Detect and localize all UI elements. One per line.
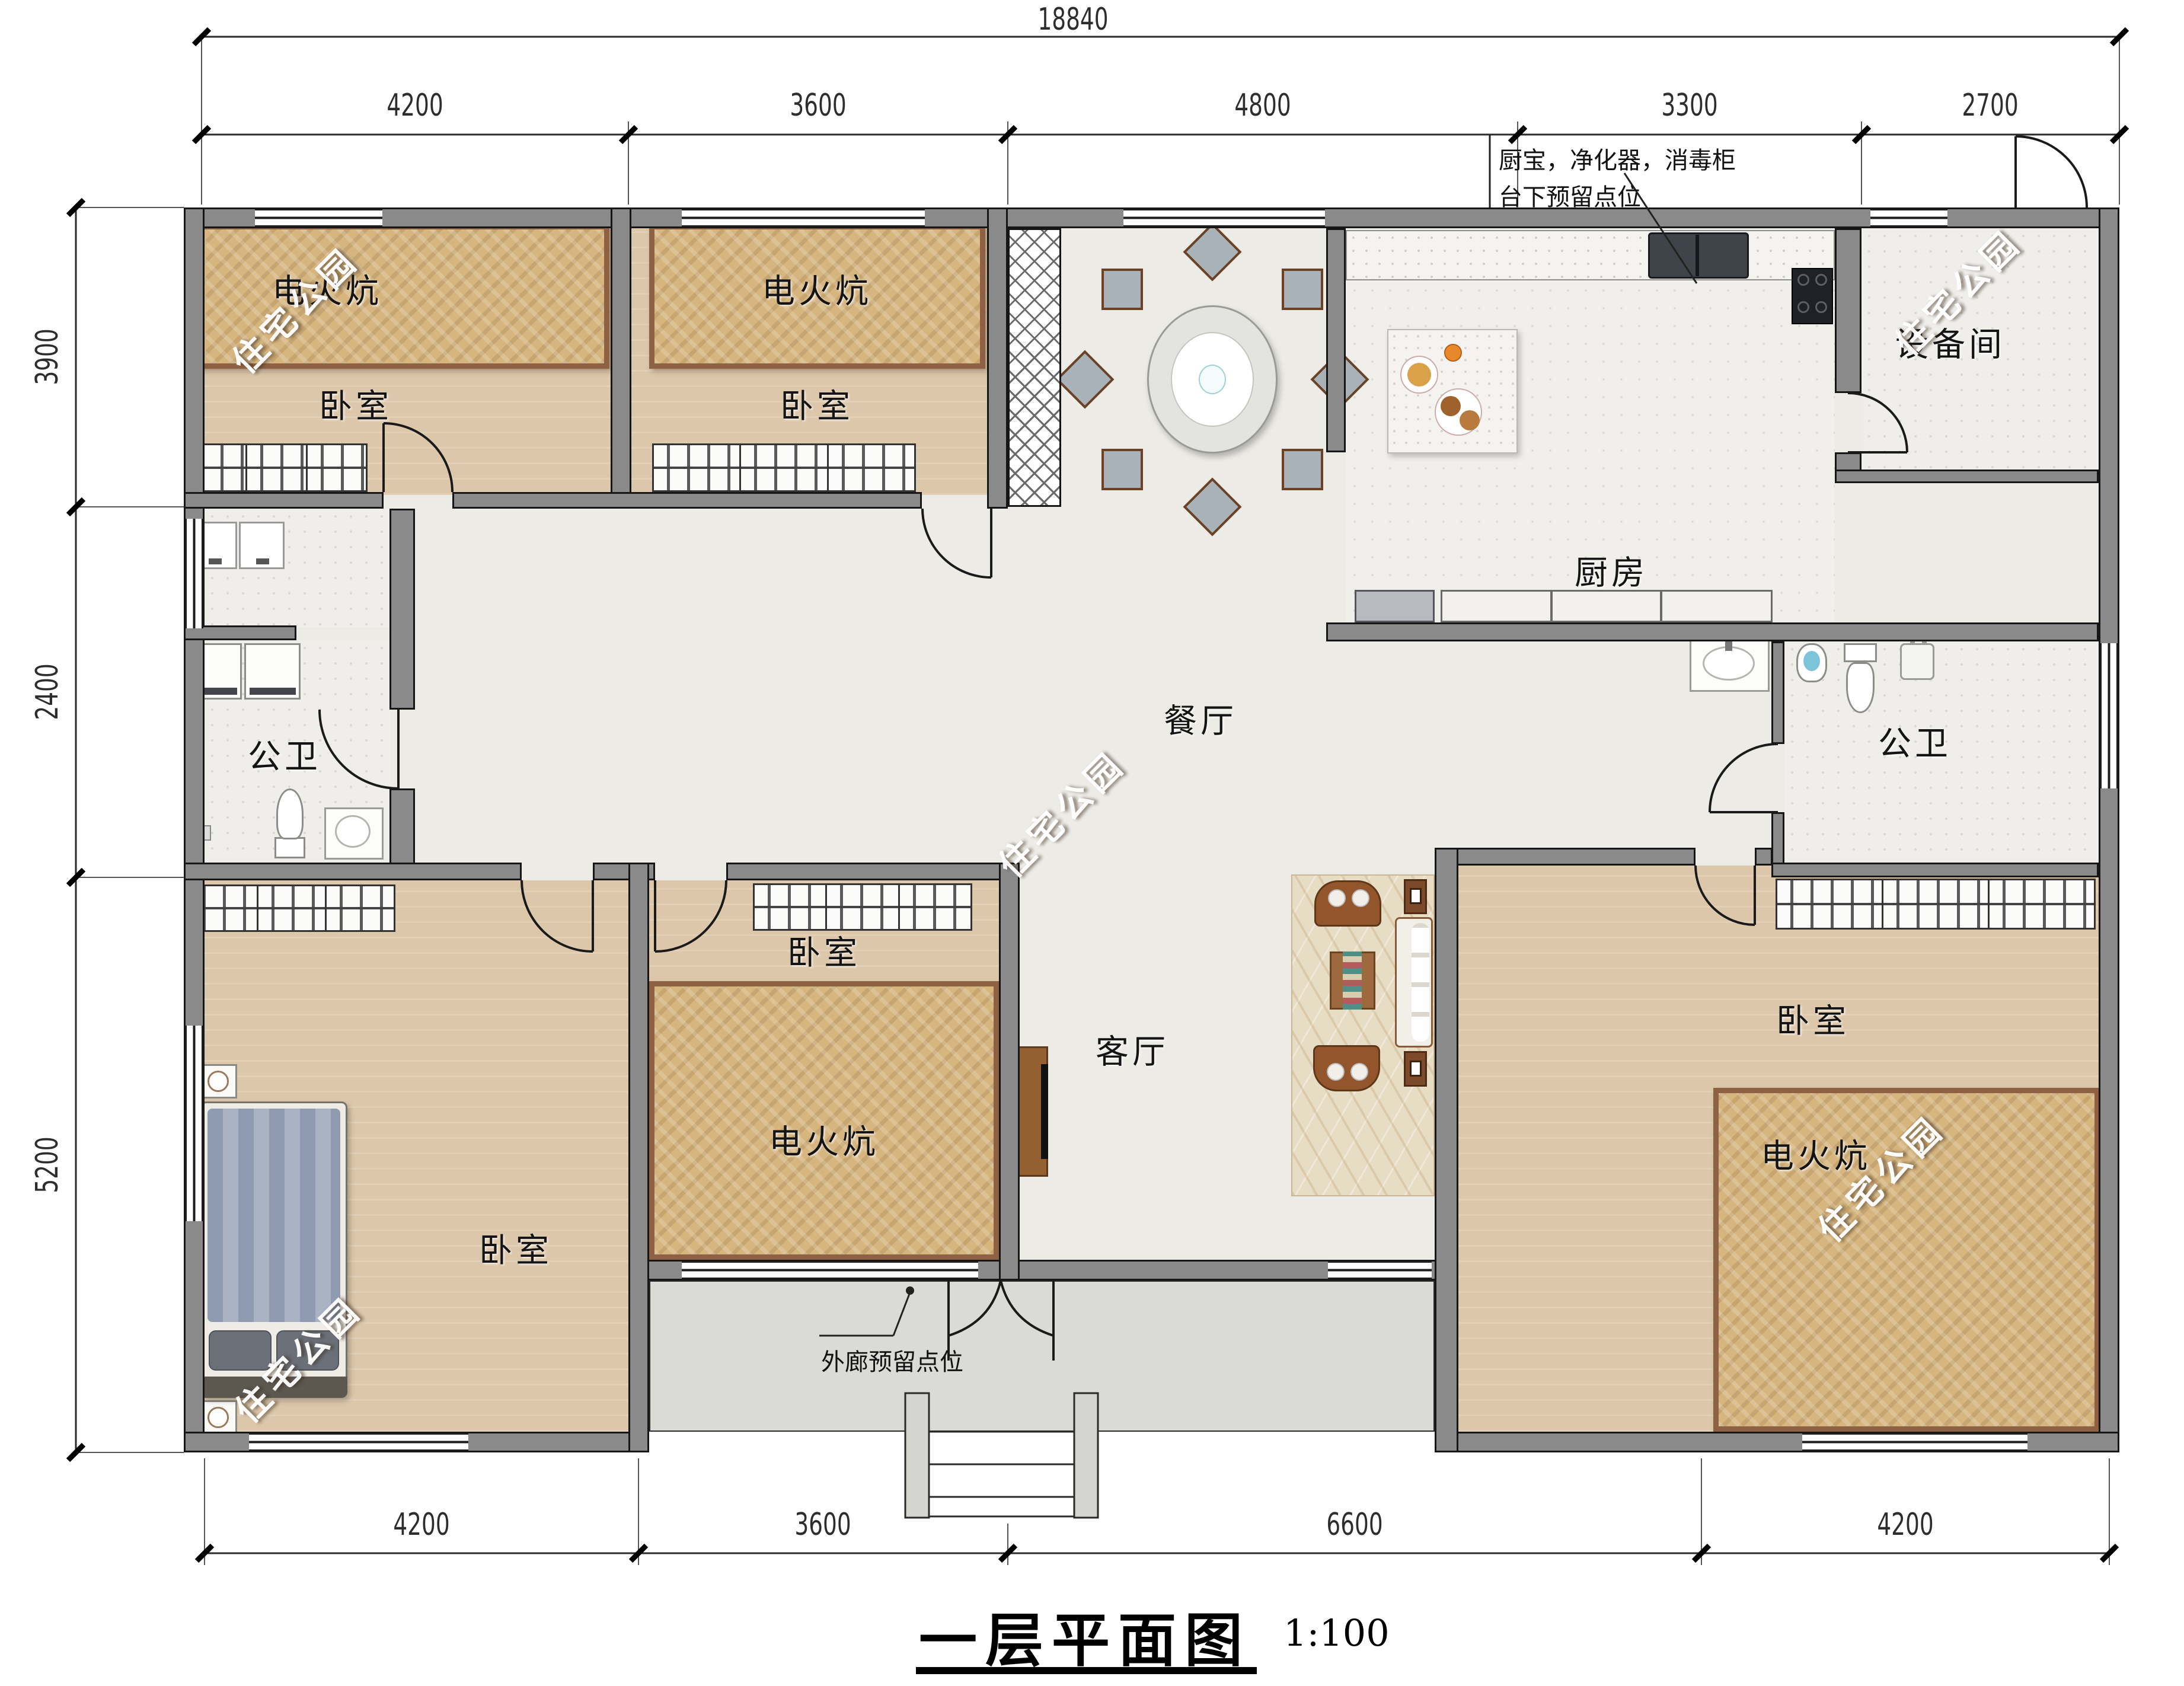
kitchen-note-line2: 台下预留点位 xyxy=(1499,178,1641,212)
label-kitchen: 厨房 xyxy=(1575,547,1648,595)
door-arc-bedroom-topleft xyxy=(384,423,452,492)
dim-left-2: 5200 xyxy=(30,1136,65,1193)
door-arc-entry-left xyxy=(949,1281,1001,1336)
door-arc-bath-left xyxy=(320,710,398,788)
porch-note: 外廊预留点位 xyxy=(821,1343,963,1377)
door-arc-bath-right xyxy=(1710,744,1778,812)
floor-plan: 电火炕 卧室 电火炕 卧室 公卫 餐厅 厨房 设备间 公卫 客厅 卧室 卧室 电… xyxy=(0,0,2184,1686)
dim-bottom-0: 4200 xyxy=(393,1507,449,1543)
dim-top-2: 4800 xyxy=(1234,88,1291,123)
dim-total-width: 18840 xyxy=(1037,2,1108,37)
label-living: 客厅 xyxy=(1096,1026,1169,1074)
dim-bottom-1: 3600 xyxy=(794,1507,851,1543)
label-kang-bottommid: 电火炕 xyxy=(769,1116,879,1164)
label-bath-right: 公卫 xyxy=(1878,717,1952,765)
dim-top-0: 4200 xyxy=(387,88,443,123)
label-bedroom-topmid: 卧室 xyxy=(780,380,854,428)
door-arc-bedroom-bottomleft xyxy=(522,880,593,951)
title-underline xyxy=(916,1667,1257,1674)
label-bedroom-bottomleft: 卧室 xyxy=(479,1224,553,1272)
dim-bottom-3: 4200 xyxy=(1877,1507,1933,1543)
door-arc-bedroom-bottomright xyxy=(1696,866,1755,925)
door-arc-utility xyxy=(1848,393,1907,452)
door-arc-bedroom-bottommid xyxy=(655,880,726,951)
door-arc-entry-right xyxy=(1001,1281,1053,1336)
dim-left-1: 2400 xyxy=(30,663,65,720)
door-arc-exterior-topright xyxy=(2016,136,2087,207)
dim-bottom-2: 6600 xyxy=(1326,1507,1382,1543)
door-arc-bedroom-topmid xyxy=(922,509,991,577)
label-kang-topmid: 电火炕 xyxy=(762,265,872,313)
kitchen-note-line1: 厨宝，净化器，消毒柜 xyxy=(1499,141,1736,175)
label-bedroom-bottommid: 卧室 xyxy=(787,927,861,975)
dim-top-1: 3600 xyxy=(790,88,846,123)
label-dining: 餐厅 xyxy=(1164,695,1237,743)
dim-top-3: 3300 xyxy=(1661,88,1717,123)
label-bedroom-topleft: 卧室 xyxy=(319,380,392,428)
dim-top-4: 2700 xyxy=(1962,88,2018,123)
label-bath-left: 公卫 xyxy=(248,730,321,778)
dim-left-0: 3900 xyxy=(30,328,65,385)
label-bedroom-bottomright: 卧室 xyxy=(1776,995,1850,1043)
plan-title: 一层平面图 xyxy=(919,1594,1251,1678)
plan-scale: 1:100 xyxy=(1283,1611,1390,1655)
